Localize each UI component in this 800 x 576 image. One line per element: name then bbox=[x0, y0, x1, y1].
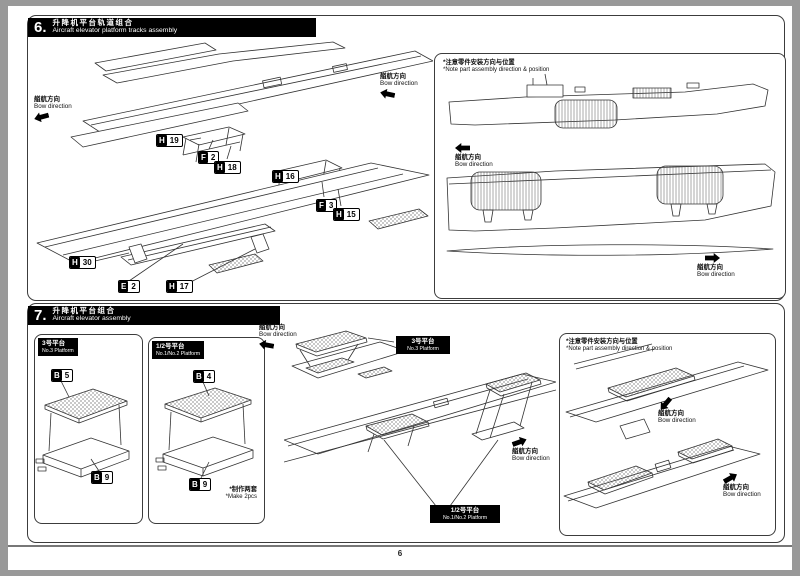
bow-direction-label: 艏航方向 Bow direction bbox=[34, 96, 72, 123]
step6-section: 6. 升降机平台轨道组合 Aircraft elevator platform … bbox=[27, 15, 785, 301]
part-label-e2: E2 bbox=[118, 280, 140, 293]
footer-rule bbox=[8, 545, 792, 547]
no12-platform-pointer-tag: 1/2号平台 No.1/No.2 Platform bbox=[430, 505, 500, 523]
bow-arrow-icon bbox=[705, 253, 720, 263]
step7-section: 7. 升降机平台组合 Aircraft elevator assembly 3号… bbox=[27, 303, 785, 543]
instruction-page: 6. 升降机平台轨道组合 Aircraft elevator platform … bbox=[8, 6, 792, 570]
step6-title-zh: 升降机平台轨道组合 bbox=[53, 19, 178, 27]
part-label-h18: H18 bbox=[214, 161, 241, 174]
step6-header: 6. 升降机平台轨道组合 Aircraft elevator platform … bbox=[28, 18, 316, 37]
part-label-b9: B9 bbox=[91, 471, 113, 484]
bow-arrow-icon bbox=[455, 143, 470, 153]
part-label-h19: H19 bbox=[156, 134, 183, 147]
step7-title-zh: 升降机平台组合 bbox=[53, 307, 131, 315]
part-label-h30: H30 bbox=[69, 256, 96, 269]
bow-direction-label: 艏航方向 Bow direction bbox=[380, 73, 418, 100]
step6-detail-box: *注意零件安装方向与位置 *Note part assembly directi… bbox=[434, 53, 786, 299]
step6-title-en: Aircraft elevator platform tracks assemb… bbox=[53, 27, 178, 34]
no3-platform-subassembly-box: 3号平台 No.3 Platform bbox=[34, 334, 143, 524]
step7-title-en: Aircraft elevator assembly bbox=[53, 315, 131, 322]
step6-number: 6. bbox=[34, 20, 47, 35]
step7-installation-diagram bbox=[284, 322, 556, 540]
part-label-h17: H17 bbox=[166, 280, 193, 293]
step7-number: 7. bbox=[34, 308, 47, 323]
bow-direction-label: 艏航方向 Bow direction bbox=[512, 436, 550, 463]
bow-direction-label: 艏航方向 Bow direction bbox=[455, 142, 493, 169]
platform-position-diagram bbox=[560, 334, 773, 533]
part-label-b9: B9 bbox=[189, 478, 211, 491]
step7-detail-box: *注意零件安装方向与位置 *Note part assembly directi… bbox=[559, 333, 776, 536]
no3-platform-pointer-tag: 3号平台 No.3 Platform bbox=[396, 336, 450, 354]
no3-platform-exploded-diagram bbox=[35, 335, 140, 521]
bow-direction-label: 艏航方向 Bow direction bbox=[723, 472, 761, 499]
part-label-h15: H15 bbox=[333, 208, 360, 221]
bow-arrow-icon bbox=[379, 87, 396, 100]
page-number: 6 bbox=[8, 549, 792, 558]
no12-platform-subassembly-box: 1/2号平台 No.1/No.2 Platform bbox=[148, 337, 265, 524]
part-label-b4: B4 bbox=[193, 370, 215, 383]
step7-header: 7. 升降机平台组合 Aircraft elevator assembly bbox=[28, 306, 280, 325]
bow-direction-zh: 艏航方向 bbox=[380, 73, 418, 80]
bow-direction-zh: 艏航方向 bbox=[34, 96, 72, 103]
quantity-note: *制作两套 *Make 2pcs bbox=[211, 486, 257, 501]
part-label-h16: H16 bbox=[272, 170, 299, 183]
part-label-b5: B5 bbox=[51, 369, 73, 382]
bow-arrow-icon bbox=[33, 110, 50, 124]
bow-direction-label: 艏航方向 Bow direction bbox=[259, 324, 297, 351]
bow-arrow-icon bbox=[258, 338, 275, 350]
bow-direction-en: Bow direction bbox=[380, 80, 418, 87]
bow-direction-label: 艏航方向 Bow direction bbox=[658, 398, 696, 425]
bow-direction-label: 艏航方向 Bow direction bbox=[697, 252, 735, 279]
bow-direction-en: Bow direction bbox=[34, 103, 72, 110]
